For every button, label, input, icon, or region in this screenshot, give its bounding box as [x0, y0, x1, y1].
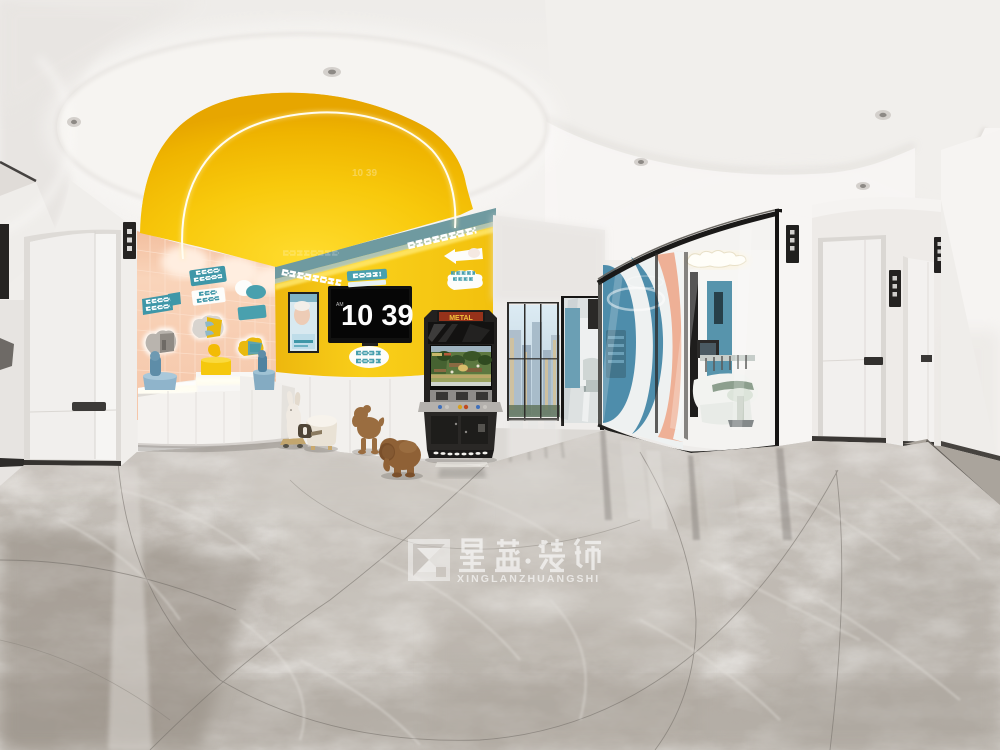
svg-text:10 39: 10 39	[341, 300, 414, 332]
svg-text:AM: AM	[336, 302, 344, 308]
svg-text:10 39: 10 39	[352, 168, 377, 179]
svg-text:METAL: METAL	[449, 315, 473, 322]
svg-text:XINGLANZHUANGSHI: XINGLANZHUANGSHI	[457, 573, 600, 585]
